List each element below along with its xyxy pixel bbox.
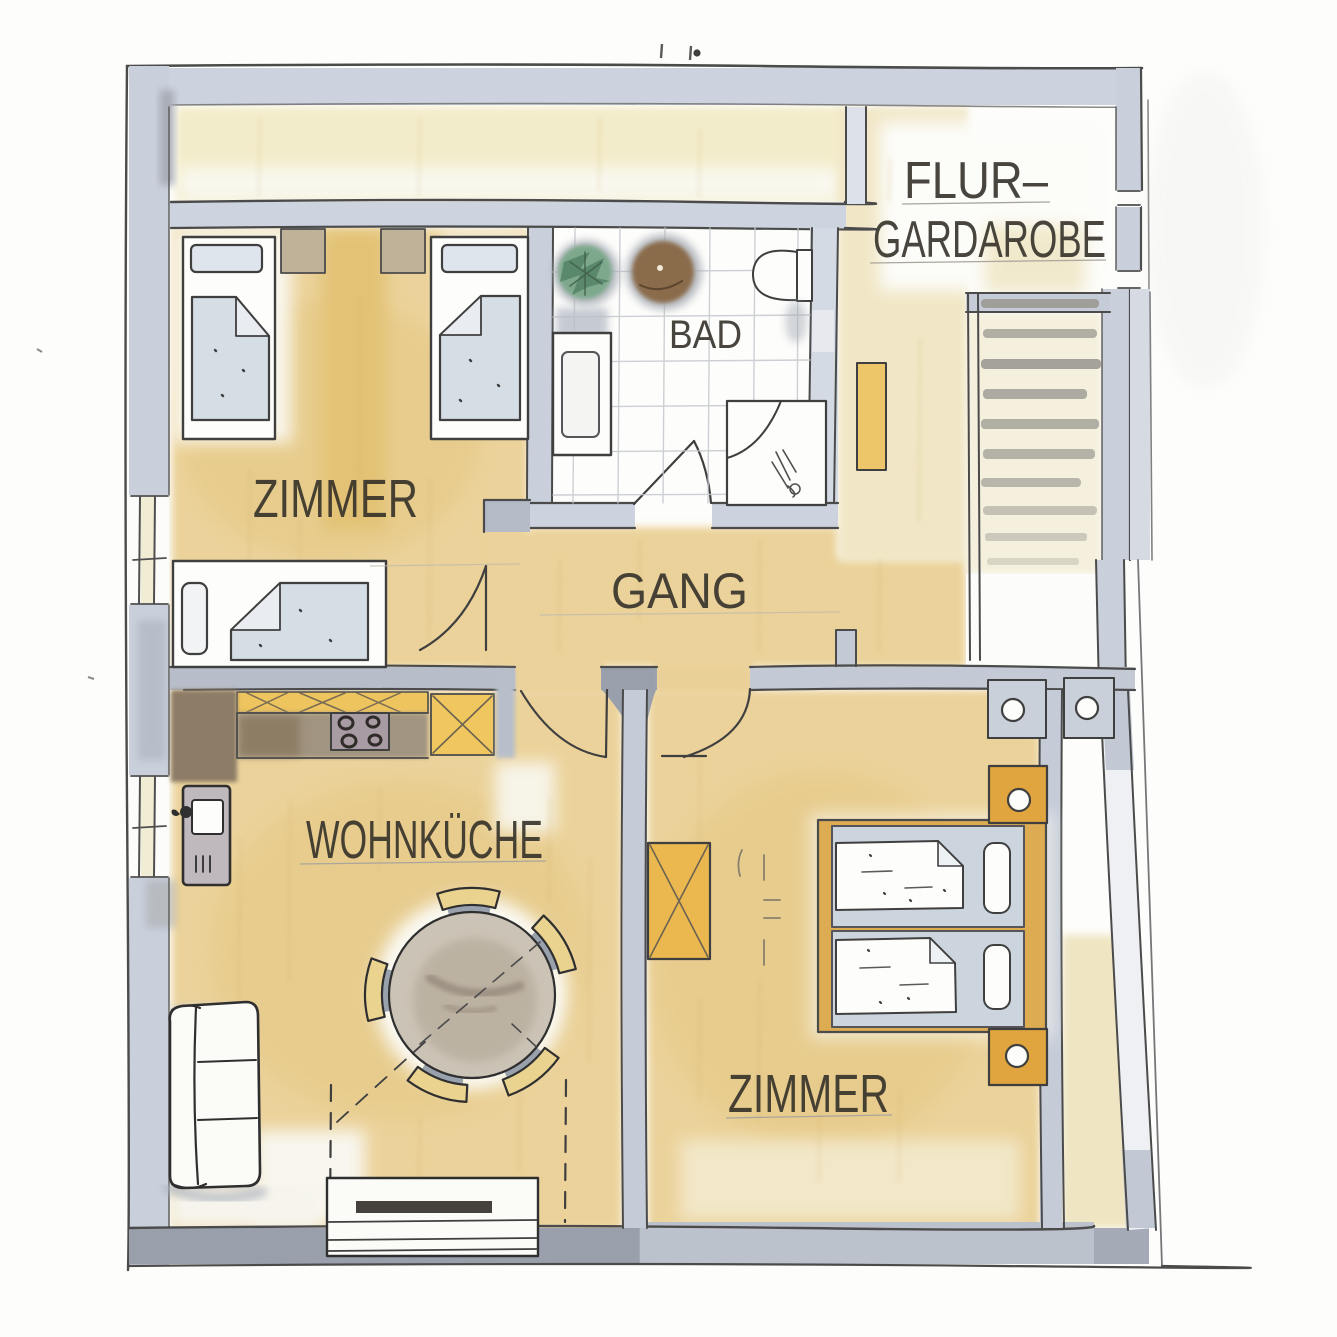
svg-text:BAD: BAD	[669, 313, 742, 357]
svg-text:ZIMMER: ZIMMER	[253, 469, 418, 529]
svg-text:FLUR–: FLUR–	[904, 152, 1048, 210]
svg-text:GANG: GANG	[611, 563, 748, 619]
